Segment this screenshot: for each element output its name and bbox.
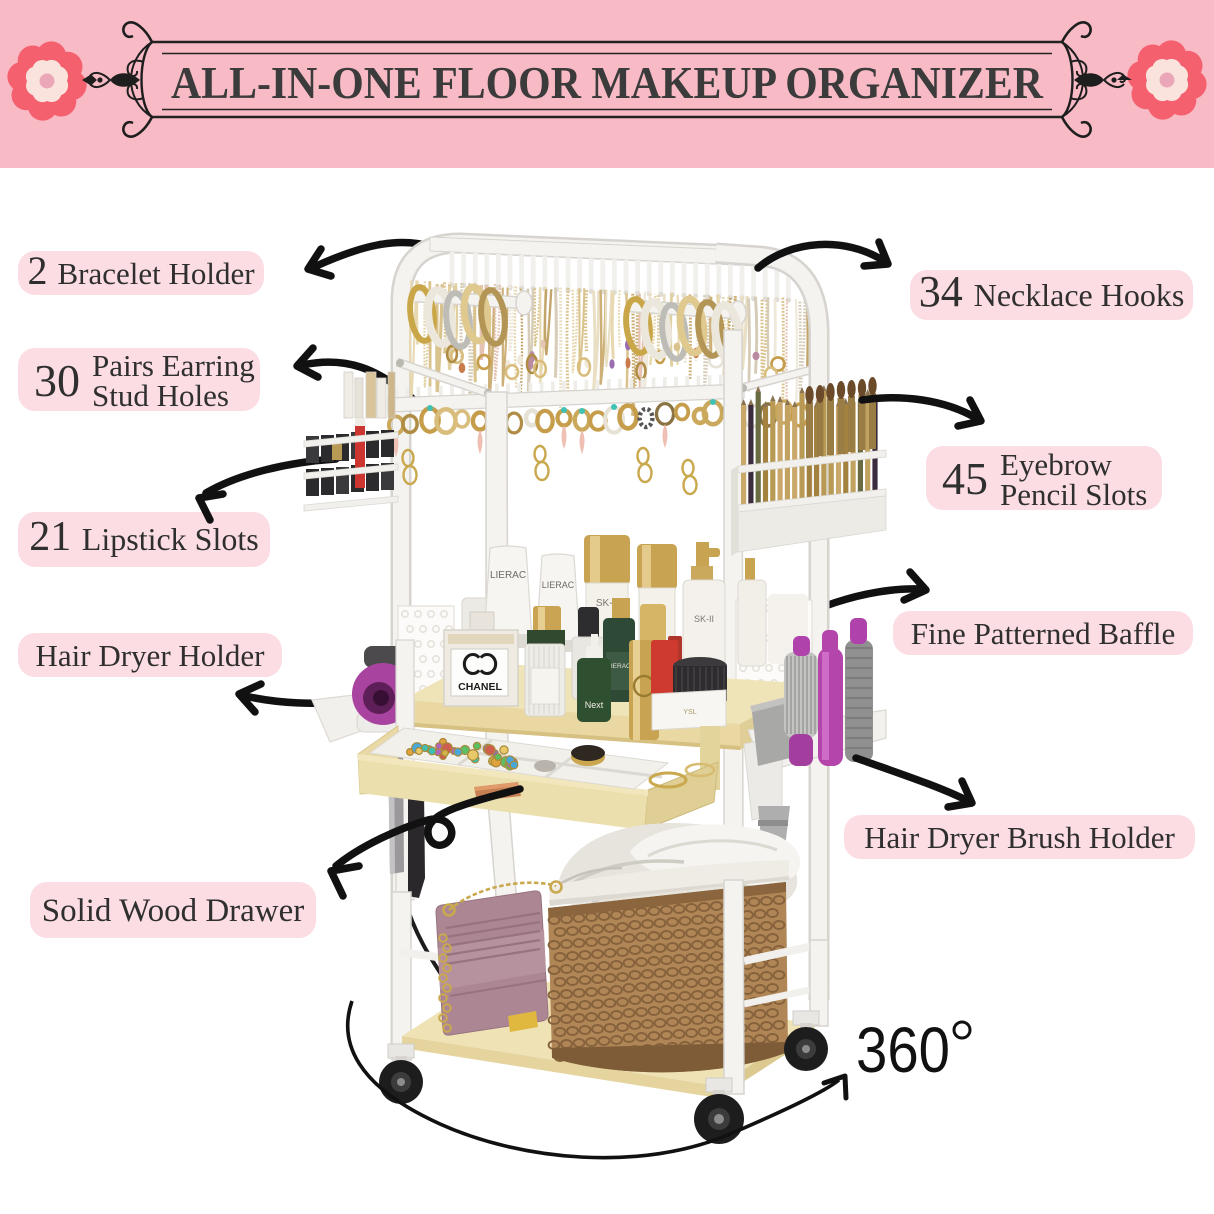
svg-text:LIERAC: LIERAC	[542, 580, 575, 590]
svg-text:SK-II: SK-II	[694, 614, 714, 624]
svg-text:Hair Dryer Brush Holder: Hair Dryer Brush Holder	[864, 820, 1175, 855]
svg-text:LIERAC: LIERAC	[490, 570, 526, 581]
svg-text:21 Lipstick Slots: 21 Lipstick Slots	[29, 514, 258, 560]
svg-text:Hair Dryer Holder: Hair Dryer Holder	[36, 638, 266, 673]
svg-text:360: 360	[856, 1014, 950, 1086]
svg-text:Pencil Slots: Pencil Slots	[1000, 477, 1147, 512]
svg-text:Stud Holes: Stud Holes	[92, 378, 229, 413]
svg-text:CHANEL: CHANEL	[458, 681, 502, 693]
svg-text:Fine Patterned Baffle: Fine Patterned Baffle	[911, 616, 1176, 651]
svg-text:Solid Wood Drawer: Solid Wood Drawer	[42, 893, 305, 929]
svg-text:Next: Next	[585, 700, 604, 710]
svg-text:YSL: YSL	[683, 709, 696, 716]
svg-text:30: 30	[34, 355, 80, 406]
svg-text:ALL-IN-ONE FLOOR MAKEUP ORGANI: ALL-IN-ONE FLOOR MAKEUP ORGANIZER	[171, 57, 1044, 108]
svg-text:45: 45	[942, 453, 988, 504]
